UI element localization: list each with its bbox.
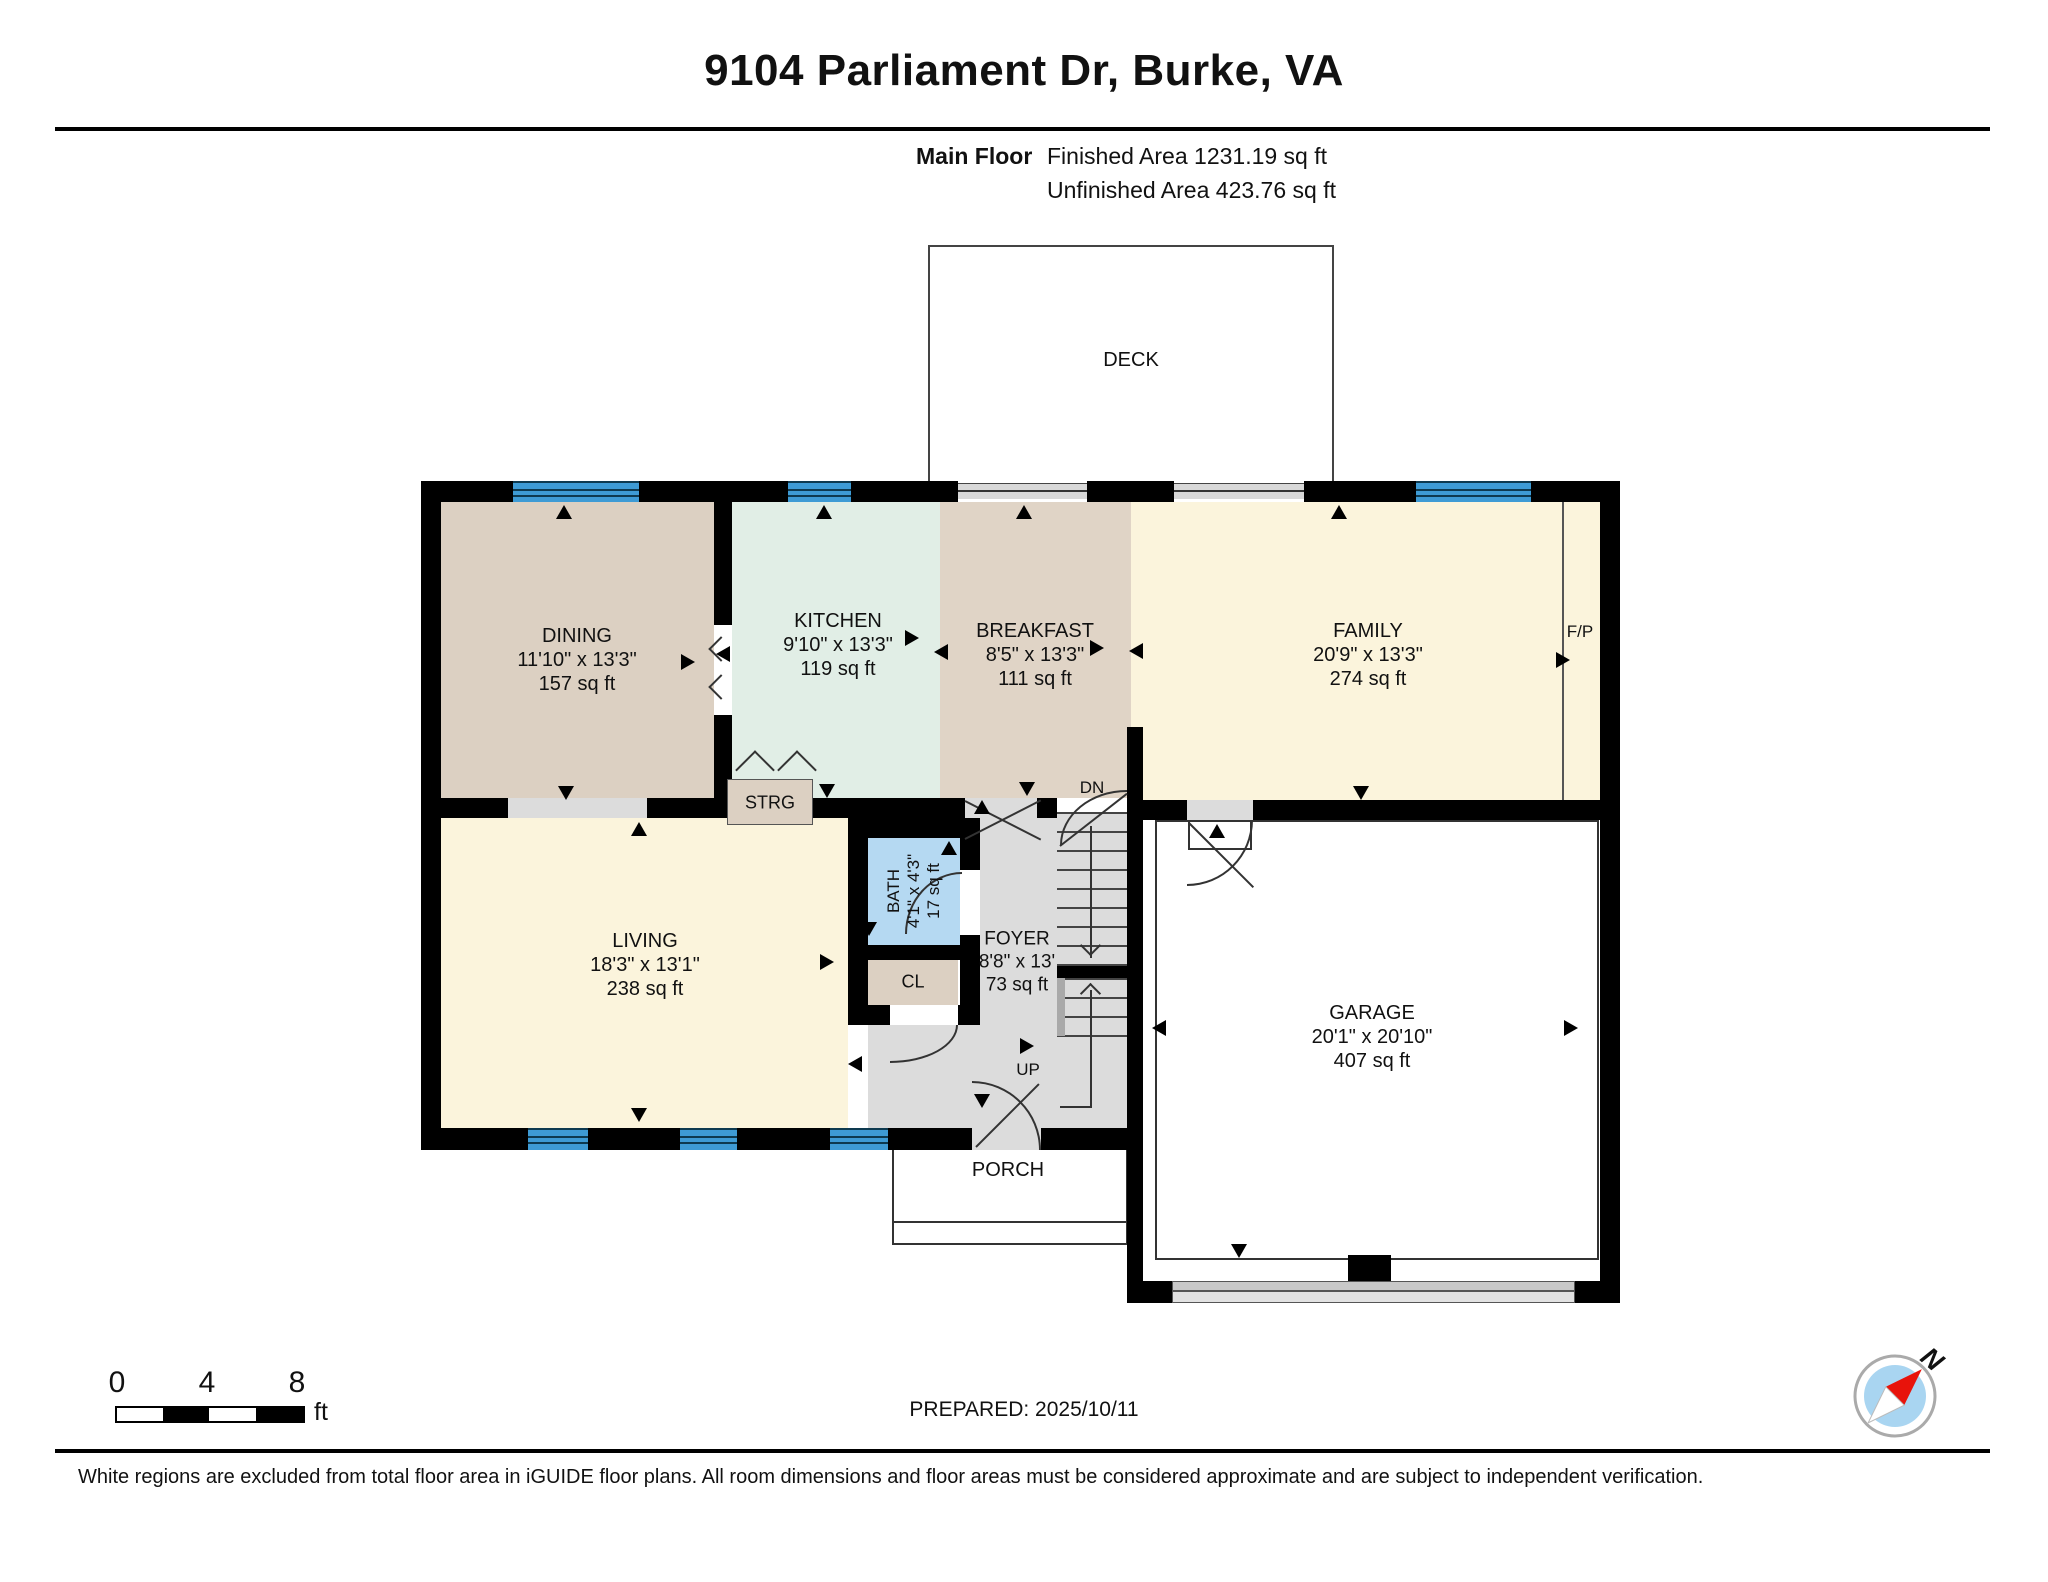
room-label-deck: DECK	[1103, 348, 1159, 372]
wall	[1253, 800, 1600, 820]
room-label-breakfast: BREAKFAST 8'5" x 13'3" 111 sq ft	[976, 619, 1094, 691]
measure-arrow-down	[558, 786, 574, 800]
wall	[737, 1128, 830, 1150]
measure-arrow-left	[848, 1056, 862, 1072]
wall	[958, 1005, 980, 1025]
measure-arrow-up	[974, 800, 990, 814]
fireplace-label: F/P	[1567, 622, 1593, 642]
room-label-garage: GARAGE 20'1" x 20'10" 407 sq ft	[1312, 1001, 1433, 1073]
sliding-door	[958, 484, 1087, 499]
wall	[868, 818, 980, 838]
measure-arrow-right	[1020, 1038, 1034, 1054]
scale-unit: ft	[314, 1398, 328, 1427]
measure-arrow-down	[1353, 786, 1369, 800]
measure-arrow-right	[681, 654, 695, 670]
room-label-porch: PORCH	[972, 1158, 1044, 1182]
stair-center-line	[1090, 990, 1092, 1108]
staircase-divider	[1057, 966, 1127, 978]
stairs-down-label: DN	[1080, 778, 1105, 798]
garage-door	[1172, 1291, 1575, 1303]
measure-arrow-down	[631, 1108, 647, 1122]
wall	[960, 838, 980, 870]
window	[1416, 481, 1531, 502]
room-label-dining: DINING 11'10" x 13'3" 157 sq ft	[517, 624, 636, 696]
measure-arrow-right	[820, 954, 834, 970]
wall	[1041, 1128, 1127, 1150]
window	[680, 1128, 737, 1150]
measure-arrow-down	[819, 784, 835, 798]
wall	[714, 502, 732, 625]
measure-arrow-left	[1129, 643, 1143, 659]
wall	[1348, 1255, 1391, 1281]
stairs-up-label: UP	[1016, 1060, 1040, 1080]
closet-label: CL	[901, 972, 924, 993]
measure-arrow-up	[816, 505, 832, 519]
room-label-bath: BATH 4'1" x 4'3" 17 sq ft	[884, 854, 944, 928]
scale-bar	[115, 1406, 305, 1423]
measure-arrow-left	[934, 644, 948, 660]
wall	[421, 798, 508, 818]
room-label-living: LIVING 18'3" x 13'1" 238 sq ft	[590, 929, 700, 1001]
stair-center-line	[1060, 1106, 1092, 1108]
scale-tick-0: 0	[109, 1366, 126, 1400]
measure-arrow-up	[631, 822, 647, 836]
floor-plan-page: 9104 Parliament Dr, Burke, VA Main Floor…	[0, 0, 2048, 1582]
measure-arrow-down	[1231, 1244, 1247, 1258]
wall	[848, 1005, 890, 1025]
measure-arrow-up	[1209, 824, 1225, 838]
wall	[588, 1128, 680, 1150]
measure-arrow-up	[1016, 505, 1032, 519]
footer-divider	[55, 1449, 1990, 1453]
porch-step	[892, 1221, 1128, 1245]
wall	[1127, 727, 1143, 1303]
measure-arrow-right	[1564, 1020, 1578, 1036]
scale-tick-8: 8	[289, 1366, 306, 1400]
wall	[421, 1128, 528, 1150]
measure-arrow-left	[426, 650, 440, 666]
measure-arrow-left	[716, 646, 730, 662]
wall	[1143, 800, 1187, 820]
staircase-edge	[1057, 978, 1065, 1036]
header-divider	[55, 127, 1990, 131]
room-label-foyer: FOYER 8'8" x 13' 73 sq ft	[979, 928, 1055, 997]
window	[528, 1128, 588, 1150]
wall	[851, 481, 958, 502]
wall	[1127, 1281, 1172, 1303]
window	[830, 1128, 888, 1150]
measure-arrow-right	[905, 630, 919, 646]
unfinished-area-text: Unfinished Area 423.76 sq ft	[1047, 177, 1336, 204]
measure-arrow-down	[974, 1094, 990, 1108]
prepared-date: PREPARED: 2025/10/11	[909, 1398, 1138, 1422]
wall	[1087, 481, 1174, 502]
garage-door-opening	[1187, 800, 1253, 820]
cased-opening	[508, 798, 647, 818]
wall	[868, 945, 960, 960]
room-label-family: FAMILY 20'9" x 13'3" 274 sq ft	[1313, 619, 1423, 691]
garage-door	[1172, 1281, 1575, 1291]
wall	[1304, 481, 1416, 502]
window	[788, 481, 851, 502]
measure-arrow-down	[1019, 782, 1035, 796]
disclaimer-text: White regions are excluded from total fl…	[78, 1466, 1703, 1489]
room-label-kitchen: KITCHEN 9'10" x 13'3" 119 sq ft	[783, 609, 893, 681]
scale-tick-4: 4	[199, 1366, 216, 1400]
sliding-door	[1174, 484, 1304, 499]
page-title: 9104 Parliament Dr, Burke, VA	[0, 46, 2048, 96]
window	[513, 481, 639, 502]
wall	[940, 798, 965, 818]
measure-arrow-left	[426, 953, 440, 969]
measure-arrow-up	[556, 505, 572, 519]
measure-arrow-down	[861, 922, 877, 936]
measure-arrow-up	[1331, 505, 1347, 519]
measure-arrow-right	[1556, 652, 1570, 668]
wall	[639, 481, 788, 502]
wall	[1575, 1281, 1620, 1303]
measure-arrow-left	[1152, 1020, 1166, 1036]
wall	[888, 1128, 972, 1150]
storage-label: STRG	[745, 793, 795, 814]
wall	[1600, 481, 1620, 1303]
floor-label: Main Floor	[916, 143, 1032, 170]
finished-area-text: Finished Area 1231.19 sq ft	[1047, 143, 1327, 170]
